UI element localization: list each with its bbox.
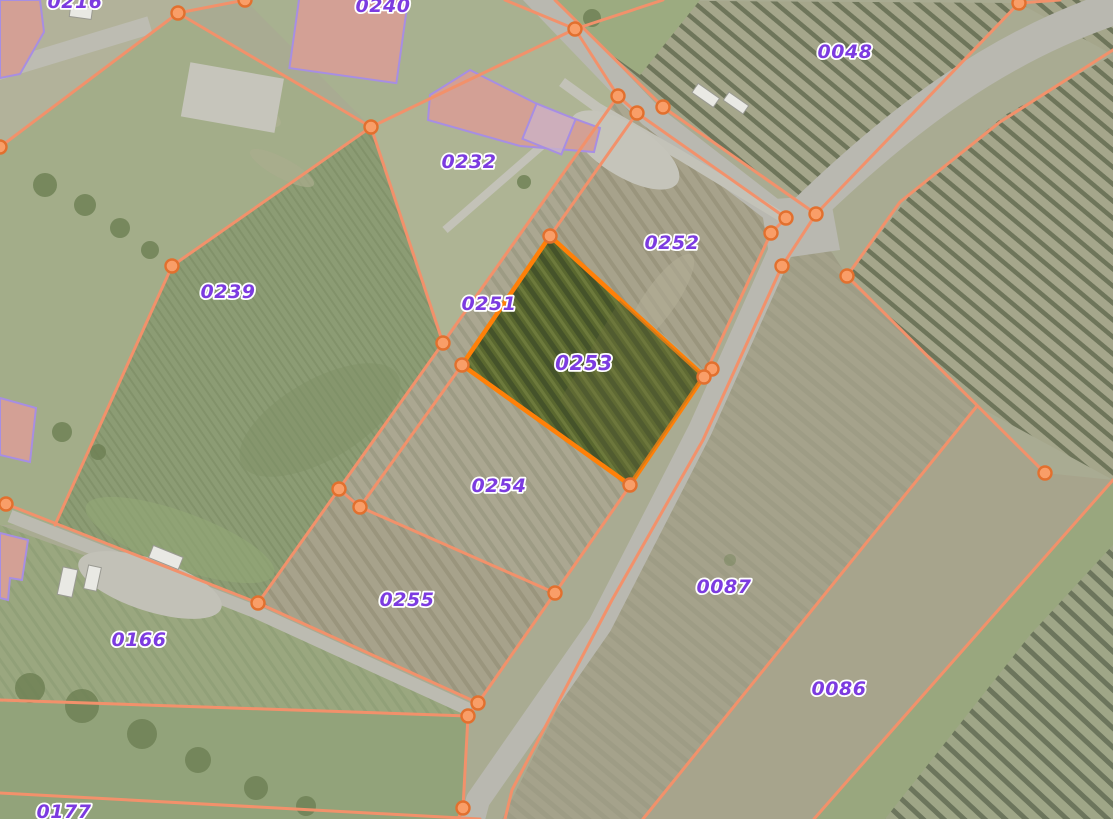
map-viewport[interactable]: 0216 0240 0048 0232 0252 0239 0251 0253 … (0, 0, 1113, 819)
parcel-label-0216[interactable]: 0216 (48, 0, 103, 13)
parcel-label-0255[interactable]: 0255 (380, 589, 435, 611)
parcel-label-0087[interactable]: 0087 (697, 576, 752, 598)
building-west (0, 398, 36, 462)
parcel-label-0239[interactable]: 0239 (201, 281, 256, 303)
parcel-label-0240[interactable]: 0240 (356, 0, 411, 17)
parcel-label-0048[interactable]: 0048 (818, 41, 873, 63)
parcel-label-0177[interactable]: 0177 (37, 801, 92, 819)
parcel-label-0086[interactable]: 0086 (812, 678, 867, 700)
map-canvas[interactable]: 0216 0240 0048 0232 0252 0239 0251 0253 … (0, 0, 1113, 819)
parcel-label-0232[interactable]: 0232 (442, 151, 497, 173)
parcel-label-0254[interactable]: 0254 (472, 475, 527, 497)
parcel-label-0251[interactable]: 0251 (462, 293, 517, 315)
parcel-label-0252[interactable]: 0252 (645, 232, 700, 254)
parcel-label-0166[interactable]: 0166 (112, 629, 167, 651)
parcel-label-0253[interactable]: 0253 (555, 351, 613, 375)
